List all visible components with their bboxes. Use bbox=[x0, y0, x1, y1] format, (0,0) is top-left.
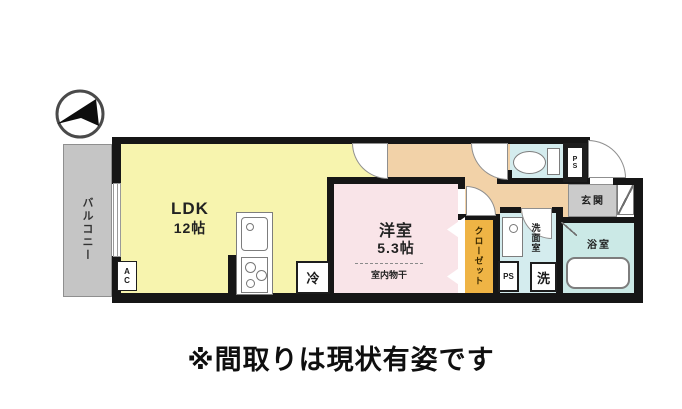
floor-plan: 冷 AC PS PS 洗 バルコニー LDK 12帖 洋室 5.3帖 室内物干 … bbox=[0, 0, 682, 409]
western-room-size-label: 5.3帖 bbox=[358, 240, 434, 256]
shoe-cabinet bbox=[617, 184, 634, 215]
indoor-drying-label: 室内物干 bbox=[355, 269, 423, 280]
kitchen-sink bbox=[241, 217, 268, 251]
pipe-space-bottom: PS bbox=[498, 261, 519, 292]
vanity-sink bbox=[502, 217, 523, 257]
front-door-arc bbox=[588, 140, 626, 178]
bathtub bbox=[566, 257, 630, 289]
burner-dot bbox=[256, 270, 267, 281]
toilet-tank bbox=[547, 148, 560, 175]
western-room-label: 洋室 bbox=[358, 220, 434, 237]
burner-dot bbox=[246, 279, 255, 288]
burner-dot bbox=[245, 262, 256, 273]
pipe-space-top: PS bbox=[563, 143, 587, 182]
wall bbox=[458, 177, 465, 189]
pipe-space-bottom-label: PS bbox=[503, 272, 514, 281]
wall bbox=[327, 177, 465, 184]
balcony-label: バルコニー bbox=[76, 186, 98, 272]
closet-label: クローゼット bbox=[469, 221, 489, 291]
wall bbox=[508, 170, 512, 184]
faucet-dot bbox=[246, 223, 254, 231]
bath-door-mark bbox=[561, 222, 577, 236]
indoor-drying-line bbox=[355, 263, 423, 264]
wall bbox=[613, 178, 643, 185]
north-arrow-icon bbox=[52, 87, 108, 143]
balcony-window bbox=[113, 183, 121, 257]
faucet-dot bbox=[509, 224, 518, 233]
kitchen-stove bbox=[241, 257, 268, 293]
entrance-label: 玄関 bbox=[572, 193, 614, 206]
bathroom-label: 浴室 bbox=[576, 237, 622, 250]
fridge-box: 冷 bbox=[296, 261, 330, 294]
wall bbox=[112, 137, 590, 144]
wall bbox=[634, 178, 643, 303]
ldk-size-label: 12帖 bbox=[150, 220, 230, 236]
washing-machine-label: 洗 bbox=[537, 268, 550, 287]
wall bbox=[112, 293, 643, 303]
ac-label: AC bbox=[123, 267, 132, 285]
pipe-space-top-label: PS bbox=[572, 156, 579, 170]
toilet-bowl-icon bbox=[513, 151, 546, 174]
wall bbox=[112, 137, 121, 184]
washroom-label: 洗面室 bbox=[527, 216, 545, 260]
washing-machine-box: 洗 bbox=[530, 262, 557, 292]
wall bbox=[500, 207, 521, 213]
ac-unit: AC bbox=[117, 261, 137, 291]
window-line bbox=[117, 184, 118, 256]
caption: ※間取りは現状有姿です bbox=[0, 338, 682, 372]
ldk-label: LDK bbox=[150, 200, 230, 218]
fridge-label: 冷 bbox=[306, 268, 319, 287]
